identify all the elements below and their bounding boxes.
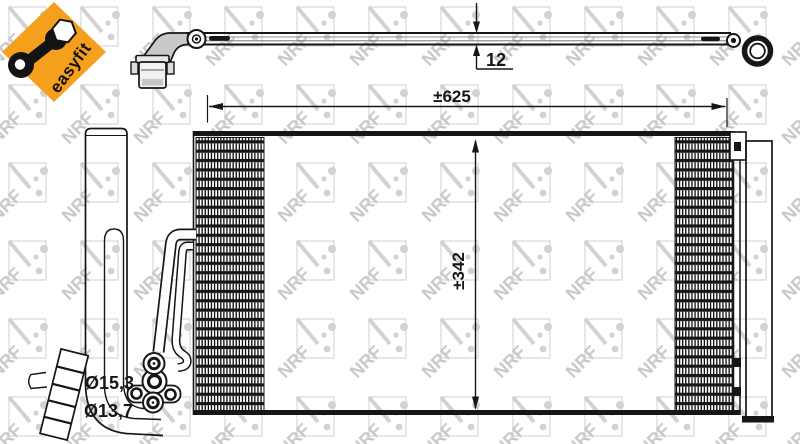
weld-mark-right [701, 37, 720, 42]
label-port-bottom: Ø13,7 [84, 401, 133, 421]
drawing-canvas: NRF easyfit [0, 0, 800, 444]
label-port-top: Ø15,3 [85, 373, 134, 393]
flange-bolt-right [166, 390, 176, 400]
condenser-top-edge [194, 131, 735, 136]
weld-mark-left [209, 36, 230, 41]
bolt-eyelet [188, 30, 206, 48]
core-fins-right [675, 138, 734, 411]
condenser-body [193, 131, 774, 423]
receiver-drier [742, 141, 774, 423]
tube-stub [29, 373, 47, 389]
core-fins-left [196, 138, 264, 411]
dimension-width-label: ±625 [433, 87, 471, 106]
header-bolt-bottom [734, 387, 741, 396]
header-bolt-middle [734, 358, 741, 367]
dimension-pipe-diameter-label: 12 [486, 50, 506, 70]
seal-ring [745, 38, 771, 64]
condenser-bottom-edge [193, 410, 740, 415]
header-bolt-top [734, 142, 741, 151]
pipe-connector-block [131, 56, 174, 89]
technical-drawing: NRF easyfit [0, 0, 800, 444]
pipe-end-fitting-center [731, 38, 736, 43]
dimension-height-label: ±342 [449, 252, 468, 290]
